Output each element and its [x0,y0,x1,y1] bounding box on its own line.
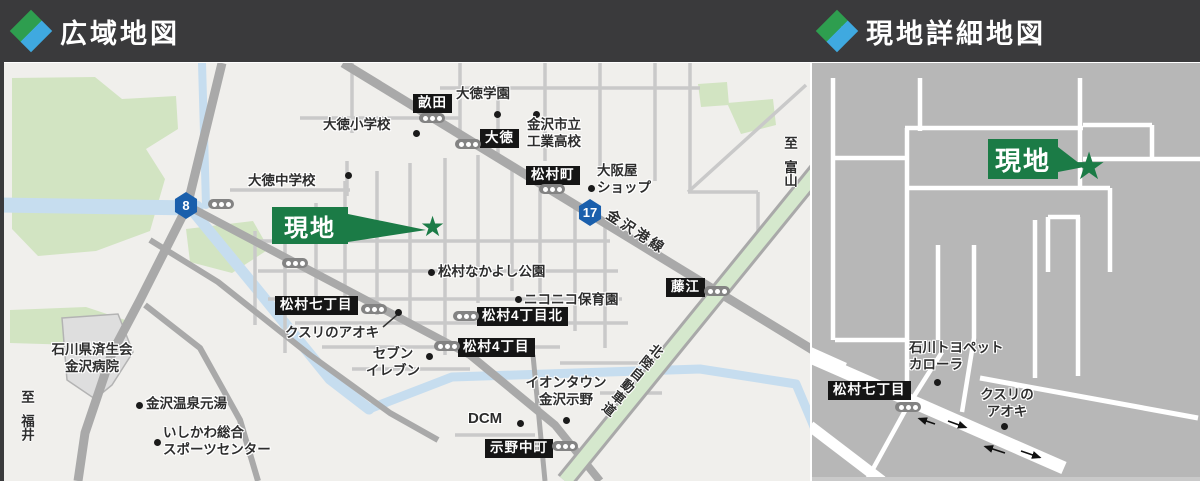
map-flyer: 広域地図 現地詳細地図 [0,0,1200,481]
area-badge-matsumura4: 松村4丁目 [458,338,535,357]
site-star-icon: ★ [1072,148,1106,186]
poi-kanazawa-tech-high: 金沢市立 工業高校 [527,117,581,150]
poi-line: 工業高校 [527,134,581,151]
traffic-signal-icon [208,199,234,209]
traffic-signal-icon [539,184,565,194]
poi-dot [1001,423,1008,430]
direction-prefix: 至 [782,136,797,150]
poi-dot [494,111,501,118]
poi-aeon-town: イオンタウン 金沢示野 [520,375,612,408]
poi-dot [136,402,143,409]
direction-place: 福井 [16,414,36,441]
traffic-signal-icon [419,113,445,123]
poi-dot [588,185,595,192]
poi-daitoku-elementary: 大徳小学校 [323,117,391,134]
poi-dot [345,172,352,179]
poi-daitoku-junior-high: 大徳中学校 [248,173,316,190]
detail-map-heading: 現地詳細地図 [822,0,1046,62]
poi-line: イレブン [362,363,424,380]
poi-nakayoshi-park: 松村なかよし公園 [438,264,545,281]
poi-seven-eleven: セブン イレブン [362,346,424,379]
area-badge-matsumuracho: 松村町 [526,166,580,185]
site-star-icon: ★ [420,213,445,241]
area-badge-matsumura4kita: 松村4丁目北 [477,307,568,326]
left-edge-border [0,62,4,481]
poi-line: 大阪屋 [597,163,651,180]
area-badge-matsumura7: 松村七丁目 [828,381,911,400]
area-badge-uneda: 畝田 [413,94,452,113]
site-detail-map: 現地 ★ 石川トヨペット カローラ クスリの アオキ 松村七丁目 [812,63,1200,481]
direction-place: 富山 [779,160,799,187]
traffic-signal-icon [552,441,578,451]
site-badge: 現地 [988,139,1058,179]
poi-dot [517,420,524,427]
poi-sports-center: いしかわ総合 スポーツセンター [163,425,271,458]
wide-map-title: 広域地図 [60,12,180,51]
poi-line: セブン [362,346,424,363]
poi-dot [413,130,420,137]
poi-line: ショップ [597,180,651,197]
poi-nikoniko-nursery: ニコニコ保育園 [524,292,619,309]
direction-toyama: 至富山 [779,136,799,187]
poi-line: 石川トヨペット [909,340,1004,357]
poi-dcm: DCM [468,410,502,429]
poi-osakaya-shop: 大阪屋 ショップ [597,163,651,196]
poi-saiseikai-hospital: 石川県済生会 金沢病院 [40,342,144,375]
poi-line: 金沢病院 [40,359,144,376]
area-badge-daitoku: 大徳 [480,129,519,148]
poi-line: クスリの [975,387,1039,404]
traffic-signal-icon [704,286,730,296]
poi-dot [515,296,522,303]
poi-dot [426,353,433,360]
poi-line: カローラ [909,357,1004,374]
area-badge-shimenonakamachi: 示野中町 [485,439,553,458]
wide-area-map: 畝田 大徳 松村町 藤江 松村七丁目 松村4丁目北 松村4丁目 示野中町 8 1… [0,63,810,481]
poi-line: 石川県済生会 [40,342,144,359]
poi-dot [154,439,161,446]
poi-onsen: 金沢温泉元湯 [146,396,227,413]
poi-dot [395,309,402,316]
diamond-icon [10,10,52,52]
poi-dot [563,417,570,424]
area-badge-matsumura7: 松村七丁目 [275,296,358,315]
traffic-signal-icon [453,311,479,321]
poi-line: イオンタウン [520,375,612,392]
traffic-signal-icon [282,258,308,268]
traffic-signal-icon [895,402,921,412]
poi-line: アオキ [975,404,1039,421]
poi-dot [934,379,941,386]
poi-dot [428,269,435,276]
direction-fukui: 至福井 [16,390,36,441]
site-badge: 現地 [272,207,348,244]
site-pointer [348,214,426,242]
poi-line: 金沢市立 [527,117,581,134]
detail-map-title: 現地詳細地図 [866,12,1046,51]
poi-daitoku-gakuen: 大徳学園 [456,86,510,103]
traffic-signal-icon [434,341,460,351]
wide-map-heading: 広域地図 [16,0,180,62]
direction-prefix: 至 [19,390,34,404]
poi-line: 金沢示野 [520,392,612,409]
wide-map-canvas [0,63,810,481]
area-badge-fujie: 藤江 [666,278,705,297]
header-bar: 広域地図 現地詳細地図 [0,0,1200,62]
poi-line: スポーツセンター [163,442,271,459]
traffic-signal-icon [455,139,481,149]
poi-kusuri-no-aoki: クスリの アオキ [975,387,1039,420]
poi-kusuri-no-aoki: クスリのアオキ [285,325,379,342]
diamond-icon [816,10,858,52]
traffic-signal-icon [361,304,387,314]
poi-toyopet-corolla: 石川トヨペット カローラ [909,340,1004,373]
poi-line: いしかわ総合 [163,425,271,442]
